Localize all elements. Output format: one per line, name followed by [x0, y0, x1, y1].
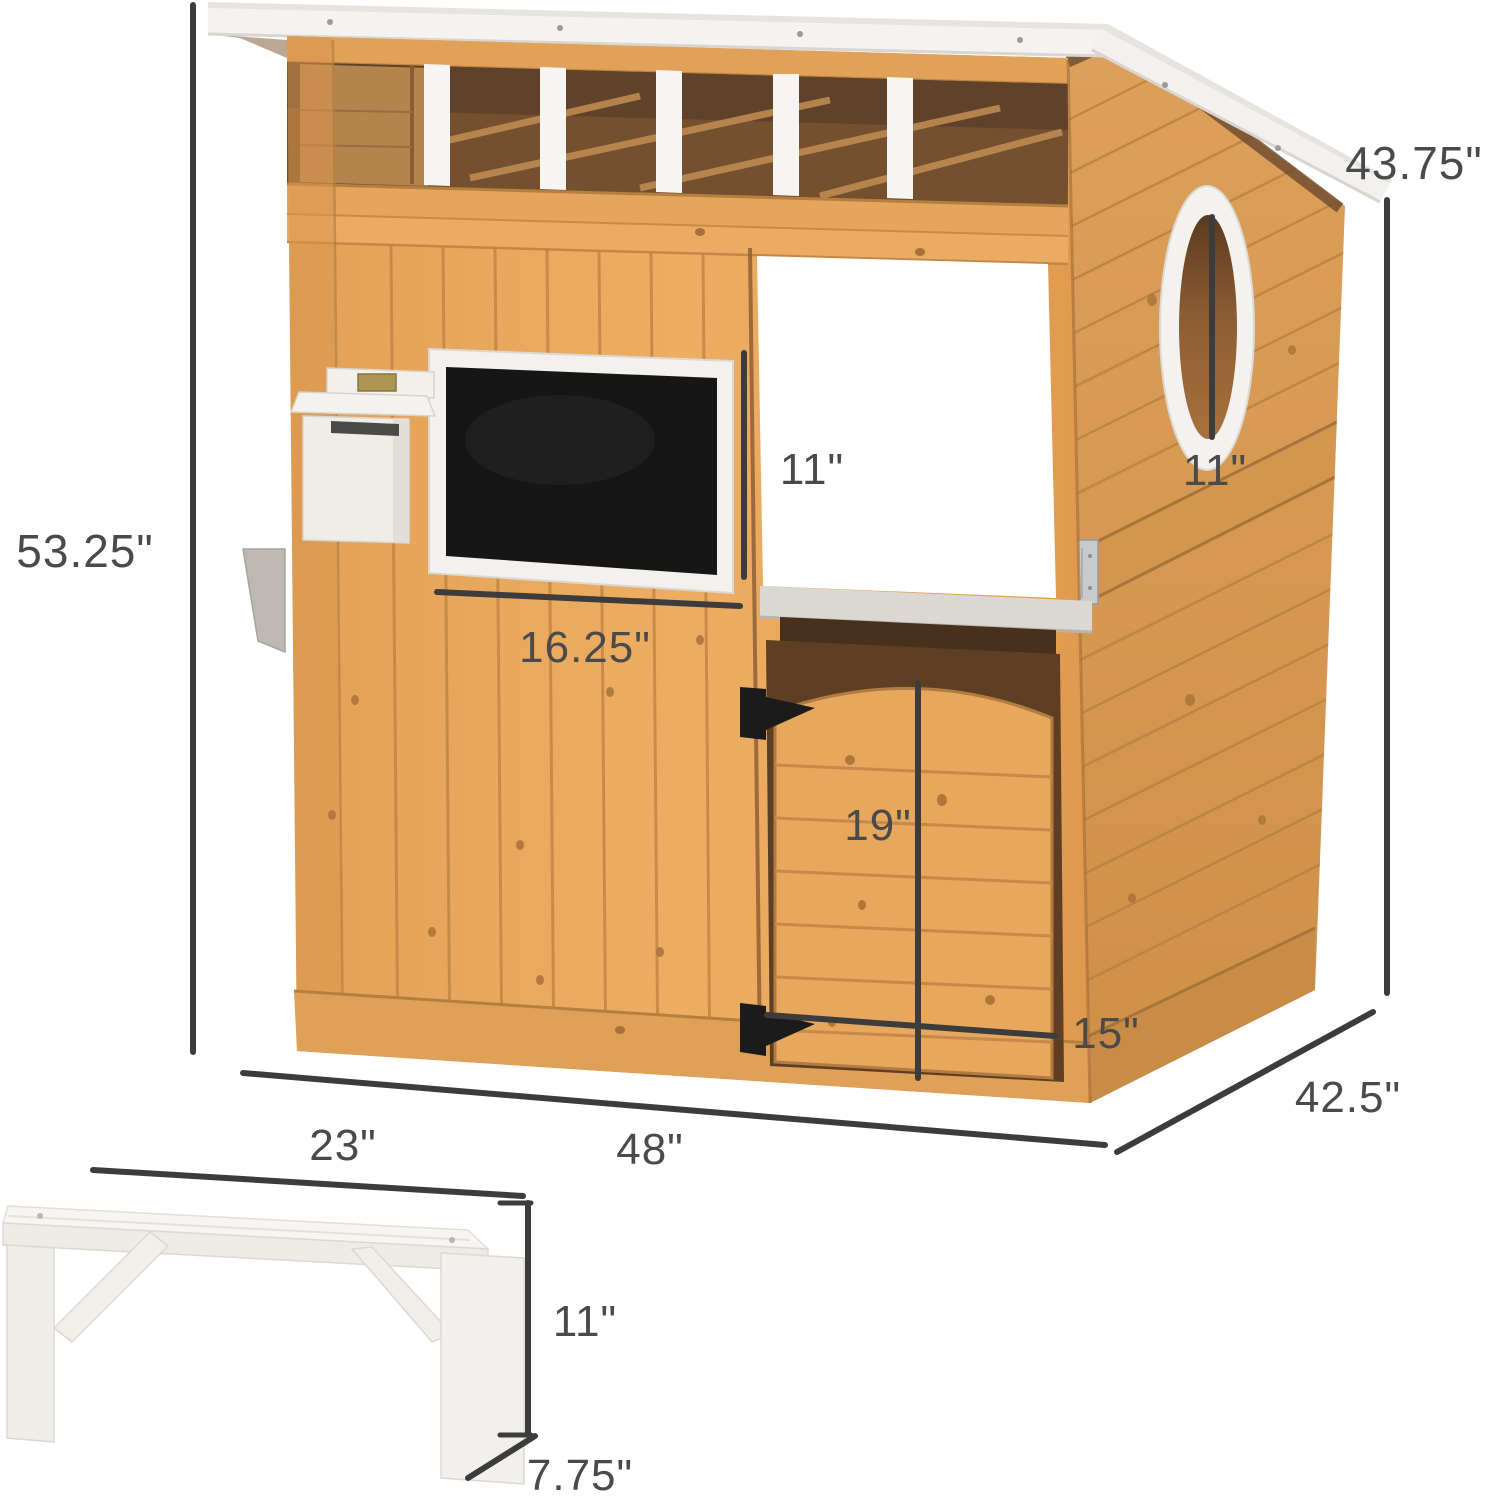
playhouse-illustration [0, 0, 1488, 1500]
porthole-window [1160, 186, 1254, 470]
dim-label-house-height: 53.25" [16, 524, 153, 578]
dim-label-storage-door-width: 15" [1072, 1009, 1140, 1059]
dim-label-bench-depth: 7.75" [527, 1451, 633, 1500]
dim-label-oval-window-height: 11" [1183, 446, 1247, 496]
side-wall [1067, 0, 1345, 1105]
mailbox-latch [358, 374, 396, 391]
bench-leg-left [7, 1245, 54, 1442]
mailbox-lid [291, 392, 435, 416]
product-dimension-diagram: 53.25" 43.75" 11" 11" 16.25" 19" 15" 42.… [0, 0, 1488, 1500]
bench-illustration [3, 1206, 524, 1484]
dim-label-house-width: 48" [616, 1125, 684, 1175]
dim-label-roof-side-height: 43.75" [1345, 136, 1482, 190]
dim-label-chalkboard-width: 16.25" [519, 623, 651, 673]
side-shelf-bracket [243, 549, 285, 652]
dim-label-door-window-height: 11" [780, 445, 844, 495]
dim-label-bench-length: 23" [309, 1121, 377, 1171]
dim-label-house-depth: 42.5" [1295, 1073, 1401, 1123]
dim-line-bench-length [93, 1170, 523, 1196]
chalkboard [429, 349, 733, 593]
dim-label-bench-height: 11" [553, 1297, 617, 1347]
roof-overhang-underside [208, 34, 287, 58]
door-window-opening [757, 256, 1056, 598]
dim-label-storage-door-height: 19" [844, 801, 912, 851]
